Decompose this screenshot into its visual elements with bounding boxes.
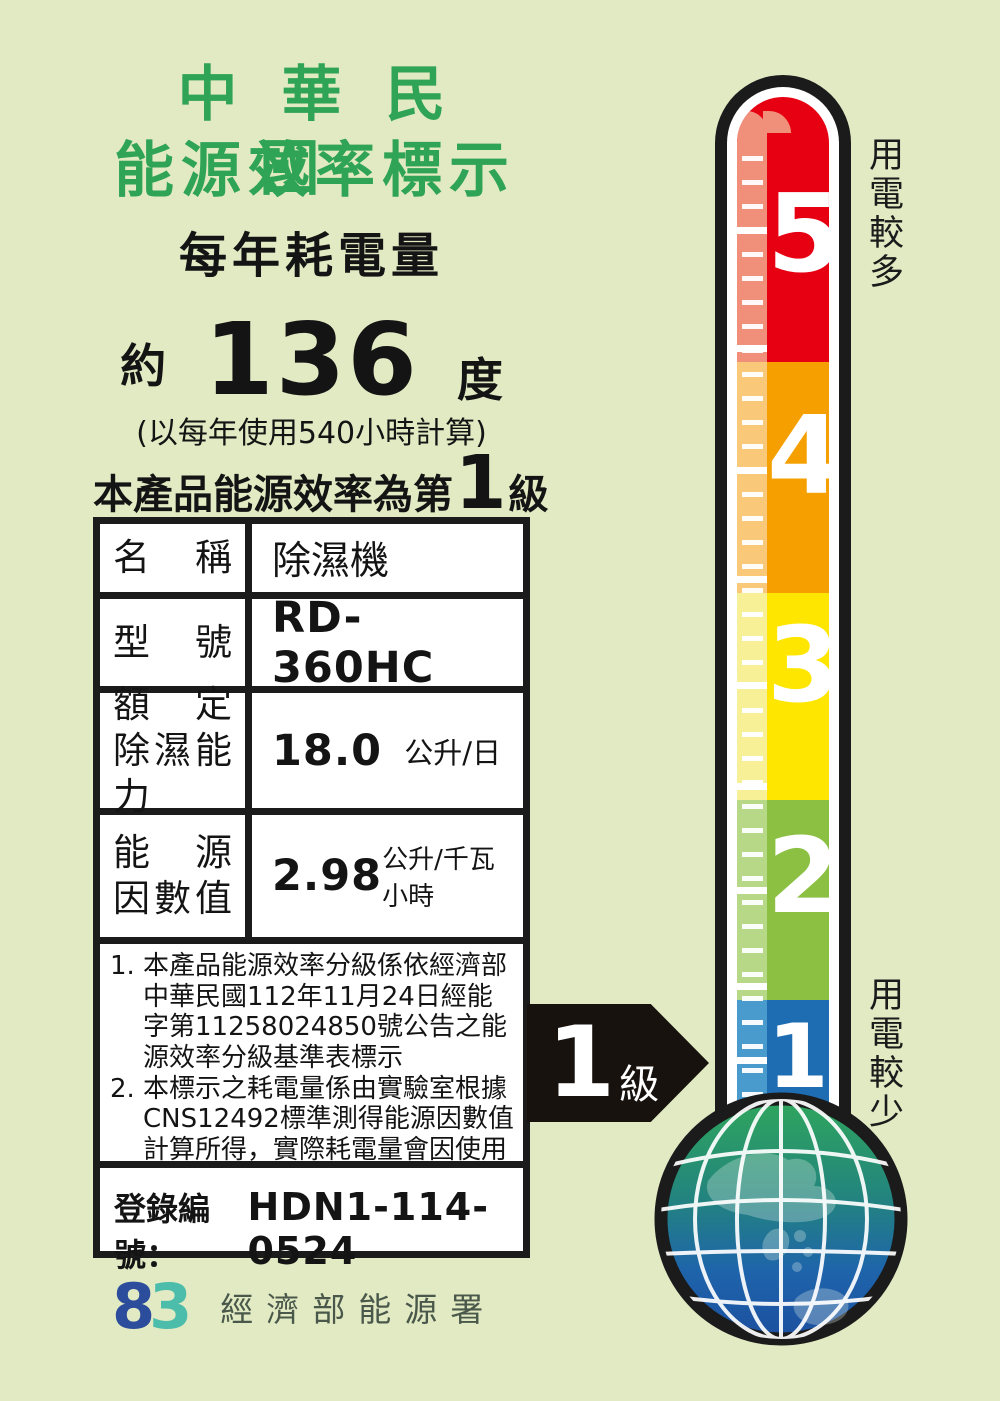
registration-label: 登錄編號： xyxy=(114,1184,240,1276)
major-tick xyxy=(737,345,767,352)
major-tick xyxy=(737,983,767,990)
energy-factor-unit: 公升/千瓦小時 xyxy=(382,839,511,913)
major-tick xyxy=(737,467,767,474)
thermometer-graphic: 5 4 3 2 1 xyxy=(715,75,851,1140)
note-text: 本產品能源效率分級係依經濟部中華民國112年11月24日經能字第11258024… xyxy=(143,951,517,1074)
thermometer-inner-ring: 5 4 3 2 1 xyxy=(727,87,839,1140)
level-number: 4 xyxy=(767,403,829,511)
thermometer-scale: 5 4 3 2 1 xyxy=(737,97,829,1140)
note-number: 2. xyxy=(110,1074,143,1168)
energy-efficiency-label: 中華民國 能源效率標示 每年耗電量 約 136 度 (以每年使用540小時計算)… xyxy=(0,0,1000,1401)
product-info-panel: 名 稱 除濕機 型 號 RD-360HC 額 定 除濕能力 18.0 公升/日 xyxy=(93,517,530,1258)
row-label-cell: 額 定 除濕能力 xyxy=(100,693,252,808)
row-label-cell: 名 稱 xyxy=(100,524,252,592)
grade-statement-value: 1 xyxy=(455,452,507,515)
annual-consumption-heading: 每年耗電量 xyxy=(93,216,530,286)
row-label-line2: 因數值 xyxy=(113,876,232,922)
grade-arrow-value: 1 xyxy=(547,1014,615,1112)
table-row-rated-capacity: 額 定 除濕能力 18.0 公升/日 xyxy=(100,693,523,815)
table-row-energy-factor: 能 源 因數值 2.98 公升/千瓦小時 xyxy=(100,815,523,944)
grade-statement-prefix: 本產品能源效率為第 xyxy=(93,462,453,520)
consumption-unit: 度 xyxy=(457,344,503,410)
row-value-cell: 2.98 公升/千瓦小時 xyxy=(252,815,523,937)
note-item-2: 2. 本標示之耗電量係由實驗室根據CNS12492標準測得能源因數值計算所得，實… xyxy=(110,1074,517,1168)
agency-name: 經濟部能源署 xyxy=(220,1283,496,1331)
row-value-cell: 18.0 公升/日 xyxy=(252,693,523,808)
major-tick xyxy=(737,783,767,790)
table-row-model: 型 號 RD-360HC xyxy=(100,599,523,693)
registration-number: HDN1-114-0524 xyxy=(248,1185,523,1273)
row-label-line1: 能 源 xyxy=(113,830,232,876)
major-tick xyxy=(737,887,767,894)
rated-capacity-value: 18.0 xyxy=(272,726,382,776)
row-label: 型 號 xyxy=(113,620,232,666)
row-label: 名 稱 xyxy=(113,535,232,581)
high-usage-label: 用電較多 xyxy=(858,136,909,292)
efficiency-grade-statement: 本產品能源效率為第 1 級 xyxy=(93,452,530,520)
annual-consumption-value: 136 xyxy=(204,310,419,410)
row-value-cell: RD-360HC xyxy=(252,599,523,686)
label-title-line2: 能源效率標示 xyxy=(93,134,530,208)
rated-capacity-unit: 公升/日 xyxy=(404,730,501,772)
major-tick xyxy=(737,1057,767,1064)
row-label-line1: 額 定 xyxy=(113,682,232,728)
row-label-cell: 能 源 因數值 xyxy=(100,815,252,937)
logo-glyph-right: 3 xyxy=(149,1276,192,1338)
product-name-value: 除濕機 xyxy=(272,530,389,586)
level-number: 3 xyxy=(767,613,829,717)
grade-arrow-suffix: 級 xyxy=(619,1052,659,1110)
low-usage-label: 用電較少 xyxy=(858,976,909,1132)
registration-section: 登錄編號： HDN1-114-0524 xyxy=(100,1168,523,1276)
level-number: 2 xyxy=(767,824,829,928)
annual-consumption-value-row: 約 136 度 xyxy=(73,310,550,410)
table-row-name: 名 稱 除濕機 xyxy=(100,524,523,599)
row-value-cell: 除濕機 xyxy=(252,524,523,592)
note-item-1: 1. 本產品能源效率分級係依經濟部中華民國112年11月24日經能字第11258… xyxy=(110,951,517,1074)
approx-prefix: 約 xyxy=(120,330,166,396)
major-tick xyxy=(737,682,767,689)
notes-section: 1. 本產品能源效率分級係依經濟部中華民國112年11月24日經能字第11258… xyxy=(100,944,523,1168)
footer: 8 3 經濟部能源署 xyxy=(112,1276,496,1338)
note-text: 本標示之耗電量係由實驗室根據CNS12492標準測得能源因數值計算所得，實際耗電… xyxy=(143,1074,517,1168)
row-label-cell: 型 號 xyxy=(100,599,252,686)
level-number: 5 xyxy=(767,181,829,289)
row-label-line2: 除濕能力 xyxy=(113,728,232,820)
major-tick xyxy=(737,227,767,234)
note-number: 1. xyxy=(110,951,143,1074)
energy-factor-value: 2.98 xyxy=(272,851,382,901)
energy-administration-logo-icon: 8 3 xyxy=(112,1276,192,1338)
major-tick xyxy=(737,576,767,583)
grade-statement-suffix: 級 xyxy=(509,462,549,520)
model-number-value: RD-360HC xyxy=(272,593,523,693)
